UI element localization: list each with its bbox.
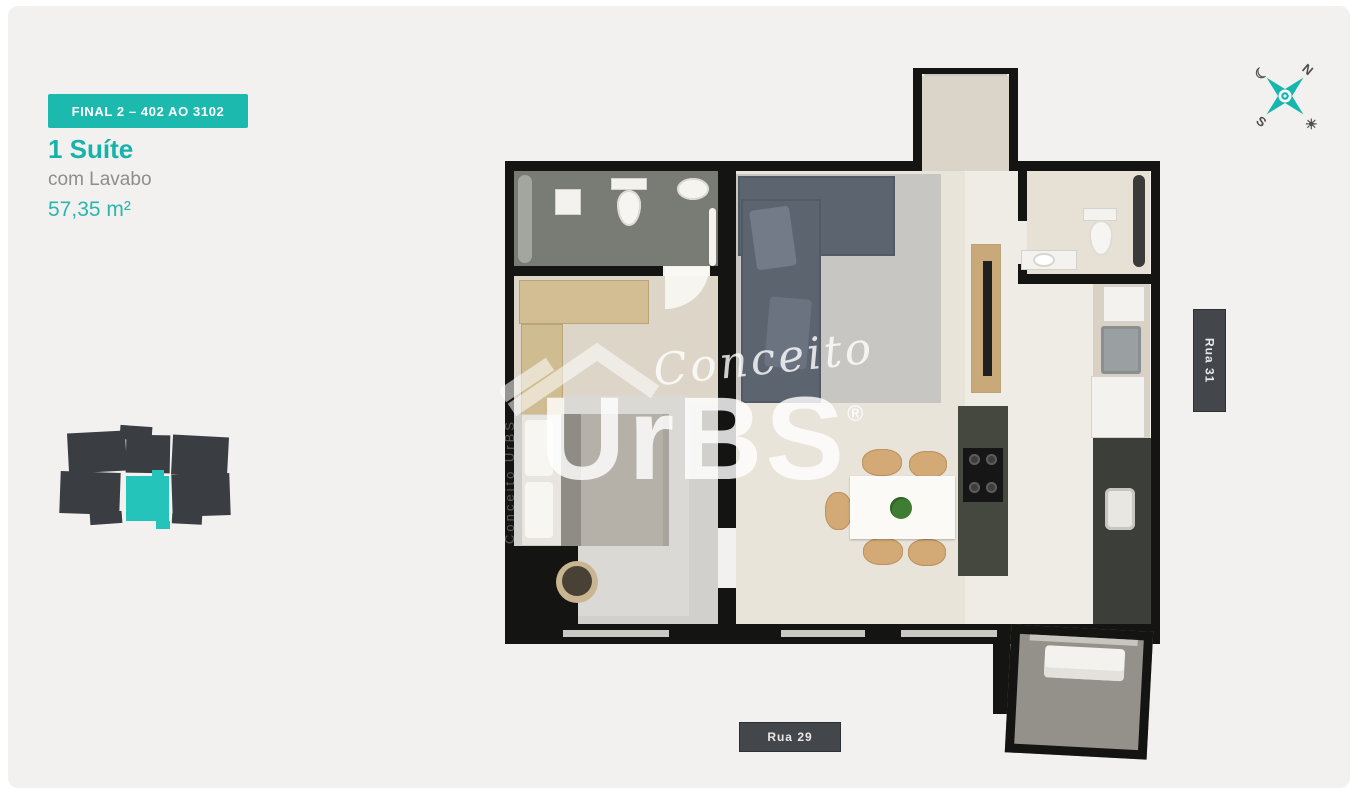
street-label-right: Rua 31 [1193, 309, 1226, 412]
tv [983, 261, 992, 376]
service-counter [1091, 376, 1145, 438]
sofa-cushion [749, 206, 797, 271]
burner [969, 454, 980, 465]
keyplan-block [171, 473, 230, 517]
dining-chair [862, 449, 902, 476]
floor-plan: Conceito UrBS® Conceito UrBS [505, 68, 1163, 760]
toilet-tank [611, 178, 647, 190]
balcony-bench [1044, 645, 1126, 681]
sun-icon: ☀ [1305, 116, 1318, 133]
wall-right [1151, 161, 1160, 644]
pouf-top [562, 566, 592, 596]
keyplan-block [172, 513, 202, 525]
wall-top-left [505, 161, 922, 171]
entry-floor [922, 76, 1009, 171]
plant [890, 497, 912, 519]
balcony-threshold [1030, 634, 1138, 646]
keyplan [60, 424, 232, 558]
dining-chair [863, 538, 903, 565]
balcony [1005, 624, 1154, 759]
watermark-side-text: Conceito UrBS [502, 384, 517, 544]
kitchen-counter-dark [1093, 438, 1151, 624]
burner [986, 482, 997, 493]
bathroom-sink [555, 189, 581, 215]
floor-plan-page: FINAL 2 – 402 AO 3102 1 Suíte com Lavabo… [0, 0, 1358, 800]
entry-wall-left [913, 68, 922, 171]
living-window [781, 630, 865, 637]
lavabo-wall-left [1018, 171, 1027, 221]
burner [986, 454, 997, 465]
keyplan-highlight-unit [126, 476, 169, 521]
lavabo-niche [1133, 175, 1145, 267]
kitchen-window [901, 630, 997, 637]
unit-badge: FINAL 2 – 402 AO 3102 [48, 94, 248, 128]
keyplan-block [59, 471, 120, 515]
bathroom-partition [709, 208, 716, 266]
dining-chair [909, 451, 947, 478]
unit-title: 1 Suíte [48, 134, 133, 165]
page-background: FINAL 2 – 402 AO 3102 1 Suíte com Lavabo… [8, 6, 1350, 788]
lavabo-wall-bottom [1018, 274, 1160, 284]
unit-subtitle: com Lavabo [48, 169, 152, 191]
lavabo-sink [1033, 253, 1055, 267]
keyplan-block [126, 435, 171, 474]
watermark-brand: UrBS® [540, 380, 866, 498]
watermark-brand-text: UrBS [540, 373, 847, 505]
vanity-sink [677, 178, 709, 200]
wardrobe-top [519, 280, 649, 324]
entry-wall-right [1009, 68, 1018, 171]
keyplan-block [90, 511, 123, 525]
shower [518, 175, 532, 263]
bathroom-wall-bottom [514, 266, 663, 276]
dining-chair [908, 539, 946, 566]
keyplan-block [67, 431, 127, 474]
counter-sink [1105, 488, 1135, 530]
unit-area: 57,35 m² [48, 198, 131, 222]
keyplan-highlight-tab [156, 521, 170, 529]
compass: N S ☾ ☀ [1251, 58, 1331, 142]
suite-living-wall-2 [718, 588, 736, 644]
bedroom-window [563, 630, 669, 637]
washing-machine [1101, 326, 1141, 374]
watermark-registered: ® [847, 401, 866, 426]
service-cabinet [1103, 286, 1145, 322]
keyplan-block [171, 435, 229, 478]
burner [969, 482, 980, 493]
wall-top-right [1018, 161, 1160, 171]
entry-wall-top [913, 68, 1018, 74]
keyplan-highlight-notch [152, 470, 164, 478]
